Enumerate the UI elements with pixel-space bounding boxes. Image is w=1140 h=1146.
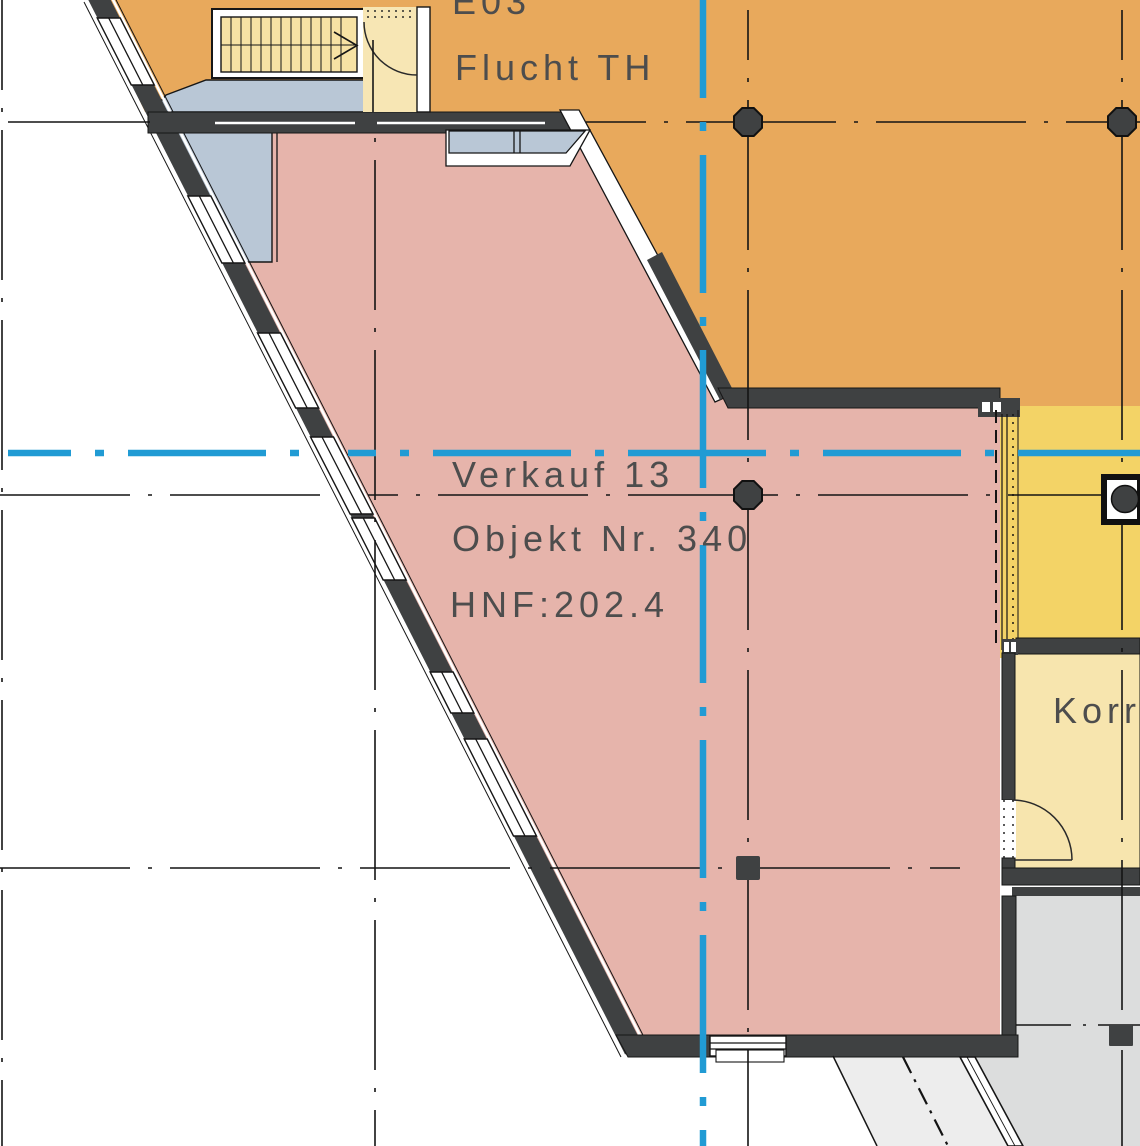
room-label-verkauf: Verkauf 13 [452,454,674,495]
column-square [1109,1025,1133,1046]
wall-orange-bottom [718,388,1000,408]
room-label-area: HNF:202.4 [450,584,669,625]
wall-korridor-bottom [1002,868,1140,885]
room-label-code: E03 [452,0,531,22]
room-label-flucht-th: Flucht TH [455,47,655,88]
column-boxed-round [1104,477,1140,522]
room-label-object-no: Objekt Nr. 340 [452,518,752,559]
wall-bottom [616,1035,1018,1057]
room-label-korridor: Korridor [1053,690,1140,731]
door-opening-korridor [1001,800,1016,858]
column-octagon [734,108,762,136]
floor-plan-svg: E03 Flucht TH Verkauf 13 Objekt Nr. 340 … [0,0,1140,1146]
room-korridor [1003,653,1140,872]
wall-korridor-bottom-2 [1012,887,1140,896]
bay-window [446,130,590,166]
column-octagon [734,481,762,509]
wall-gray-left [1002,896,1016,1037]
column-octagon [1108,108,1136,136]
column-square [736,856,760,880]
floor-plan-canvas: E03 Flucht TH Verkauf 13 Objekt Nr. 340 … [0,0,1140,1146]
wall-korridor-left [1002,653,1015,800]
